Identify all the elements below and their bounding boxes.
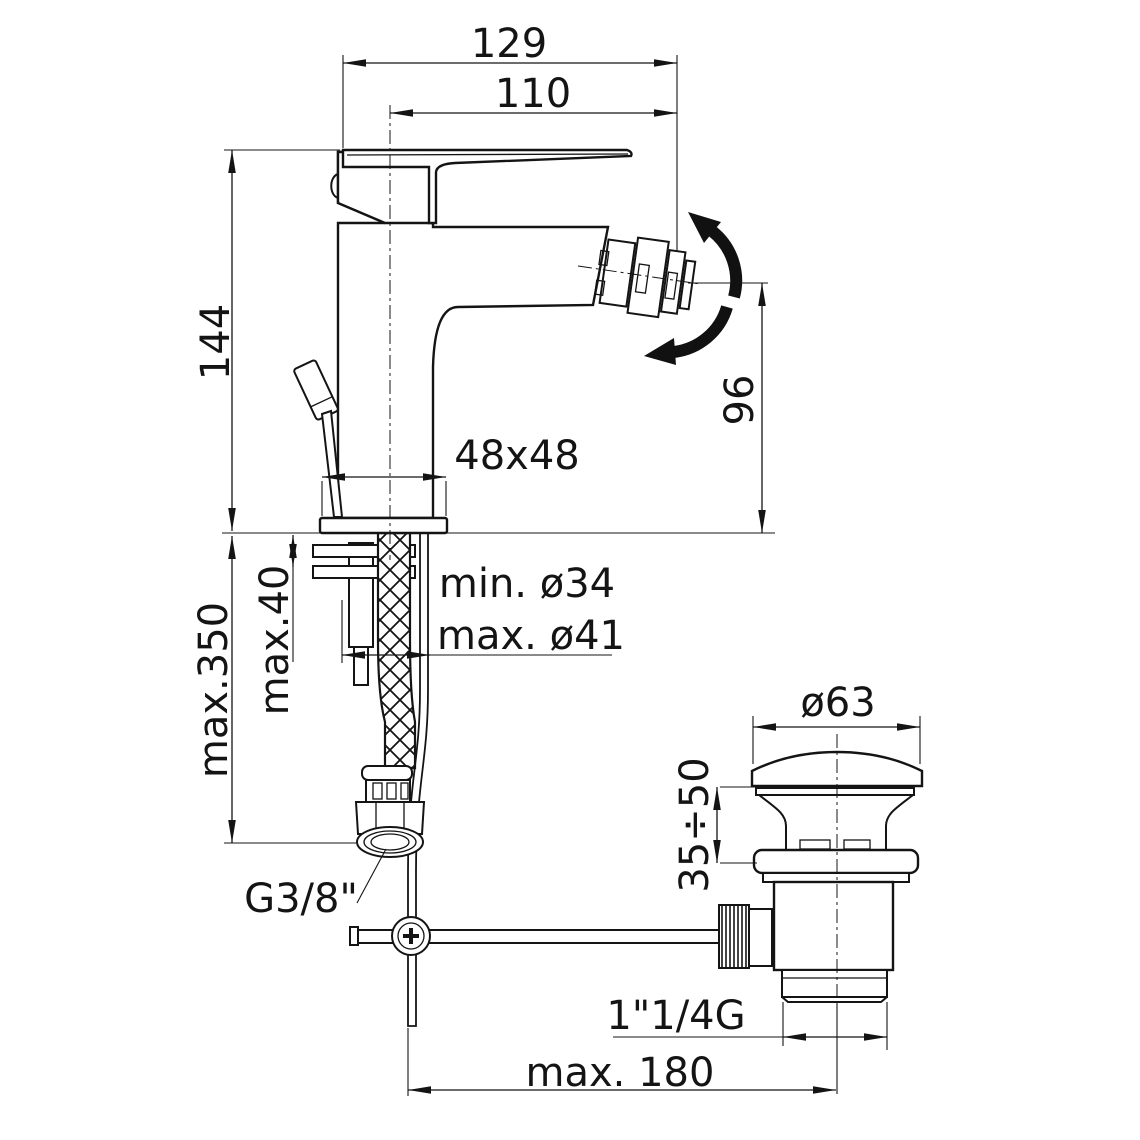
- label-supply-thread: G3/8": [244, 876, 358, 922]
- label-base-section: 48x48: [454, 433, 579, 479]
- rod-end-cap: [350, 927, 358, 945]
- label-waste-cap-diameter: ø63: [800, 680, 875, 726]
- base-plate: [320, 518, 447, 533]
- label-body-height: 144: [193, 304, 239, 380]
- bidet-mixer-dimension-drawing: 129 110 144 max.350 max.40 96 48x48 min.…: [0, 0, 1140, 1140]
- label-hose-drop: max.350: [191, 602, 237, 778]
- label-waste-thread: 1"1/4G: [606, 993, 745, 1039]
- label-waste-adjust-range: 35÷50: [672, 757, 718, 892]
- label-hole-min: min. ø34: [439, 561, 615, 607]
- hose-ferrule: [362, 766, 412, 780]
- waste-cap-washer: [756, 788, 914, 795]
- label-overall-depth: 129: [471, 21, 547, 67]
- technical-drawing-page: 129 110 144 max.350 max.40 96 48x48 min.…: [0, 0, 1140, 1140]
- waste-tailpiece: [782, 970, 887, 997]
- waste-adapter-collar: [749, 909, 772, 966]
- label-rod-offset: max. 180: [526, 1050, 715, 1096]
- waste-flange-step: [763, 873, 909, 882]
- label-deck-thickness: max.40: [252, 565, 298, 716]
- label-spout-height: 96: [717, 375, 763, 426]
- threaded-stud-tip: [354, 647, 368, 685]
- waste-knurled-adapter: [719, 905, 749, 968]
- label-hole-max: max. ø41: [437, 613, 625, 659]
- waste-flange: [754, 850, 918, 873]
- threaded-stud: [349, 543, 373, 647]
- label-spout-reach: 110: [495, 71, 571, 117]
- waste-body: [774, 882, 893, 970]
